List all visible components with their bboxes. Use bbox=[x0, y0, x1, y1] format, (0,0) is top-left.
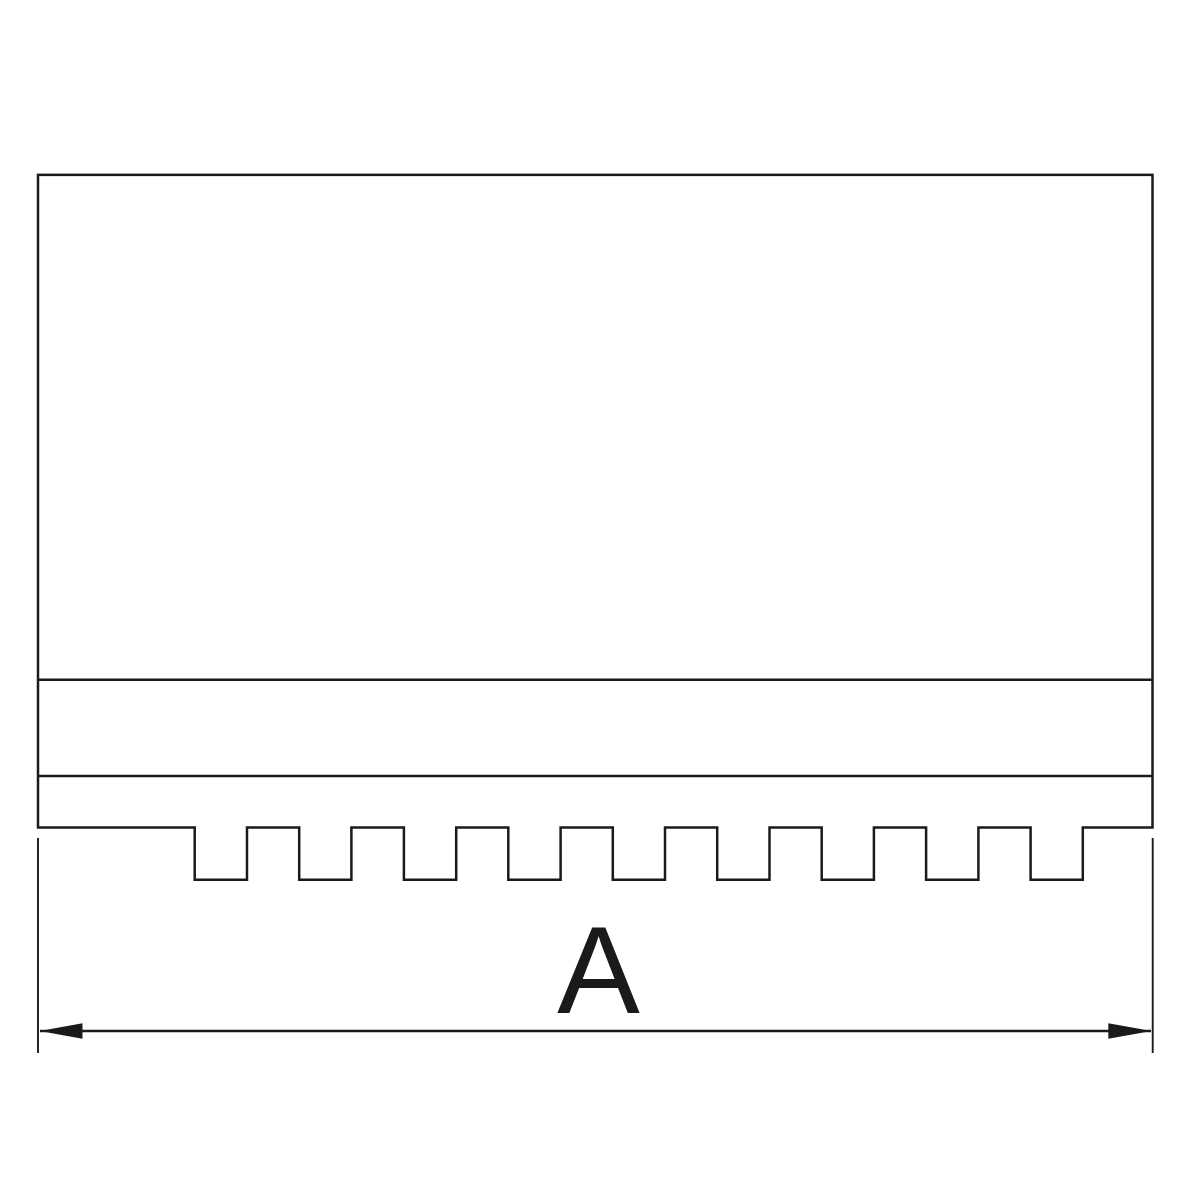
svg-text:A: A bbox=[557, 902, 640, 1040]
